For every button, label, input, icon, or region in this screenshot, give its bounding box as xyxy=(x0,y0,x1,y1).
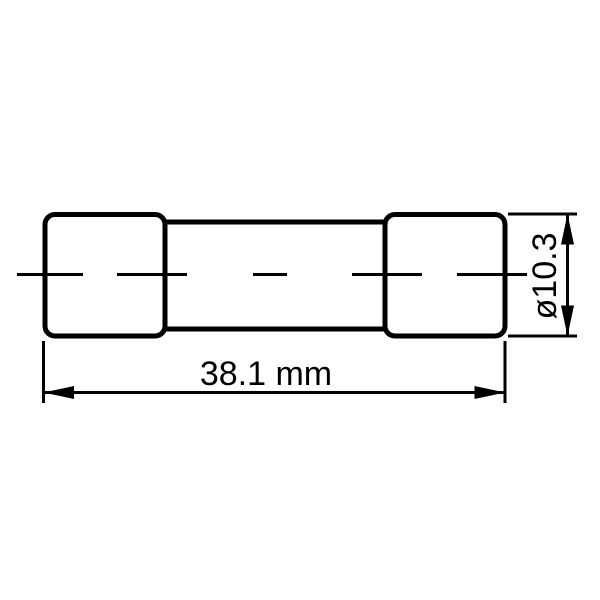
technical-drawing-canvas: 38.1 mm ø10.3 xyxy=(0,0,600,600)
fuse-dimension-diagram: 38.1 mm ø10.3 xyxy=(0,0,600,600)
length-arrow-right-icon xyxy=(475,386,506,399)
length-dimension-label: 38.1 mm xyxy=(200,355,332,393)
diameter-dimension-label: ø10.3 xyxy=(526,233,564,320)
length-arrow-left-icon xyxy=(44,386,75,399)
